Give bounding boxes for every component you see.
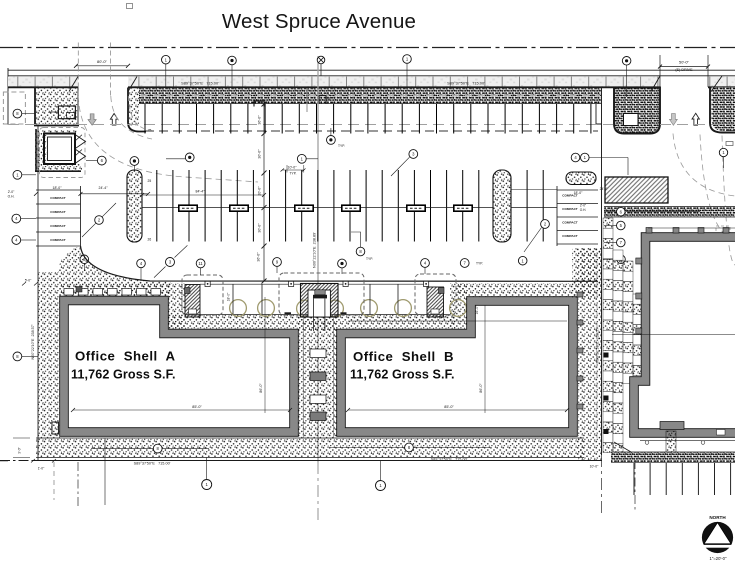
- svg-text:NORTH: NORTH: [709, 515, 726, 520]
- svg-text:25: 25: [148, 129, 152, 133]
- svg-text:TYP.: TYP.: [476, 262, 483, 266]
- svg-text:TYP.: TYP.: [338, 144, 345, 148]
- svg-text:COMPACT: COMPACT: [50, 210, 66, 214]
- svg-text:S89°37'50"E 715.00': S89°37'50"E 715.00': [447, 81, 485, 86]
- svg-text:10'-0": 10'-0": [288, 165, 298, 169]
- svg-text:85'-0": 85'-0": [444, 405, 454, 409]
- svg-text:3'-0": 3'-0": [18, 446, 22, 453]
- svg-text:24'-4": 24'-4": [99, 186, 109, 190]
- svg-text:Office Shell A: Office Shell A: [75, 349, 176, 364]
- svg-text:84'-4": 84'-4": [196, 190, 206, 194]
- svg-text:COMPACT: COMPACT: [50, 224, 66, 228]
- svg-text:2'-0": 2'-0": [8, 190, 15, 194]
- svg-text:West Spruce Avenue: West Spruce Avenue: [222, 10, 416, 33]
- svg-text:10'-0": 10'-0": [590, 465, 599, 469]
- svg-text:25: 25: [148, 179, 152, 183]
- svg-text:80'-0": 80'-0": [97, 59, 108, 64]
- svg-text:30'-0": 30'-0": [258, 223, 262, 233]
- svg-text:16'-0": 16'-0": [475, 305, 479, 314]
- svg-text:S89°37'50"E 715.00': S89°37'50"E 715.00': [134, 461, 171, 465]
- svg-text:COMPACT: COMPACT: [562, 234, 578, 238]
- svg-text:2'-0": 2'-0": [580, 204, 586, 208]
- svg-text:36'-0": 36'-0": [258, 115, 262, 125]
- svg-text:26: 26: [148, 238, 152, 242]
- svg-text:COMPACT: COMPACT: [50, 196, 66, 200]
- svg-text:1'-0": 1'-0": [38, 466, 45, 470]
- svg-text:S89°37'50"E 715.00': S89°37'50"E 715.00': [431, 457, 468, 461]
- svg-text:COMPACT: COMPACT: [562, 207, 578, 211]
- svg-text:O.H.: O.H.: [580, 208, 587, 212]
- svg-text:COMPACT: COMPACT: [562, 221, 578, 225]
- svg-text:50'-0": 50'-0": [679, 60, 690, 65]
- svg-text:18'-0": 18'-0": [574, 191, 583, 195]
- svg-text:72'-0": 72'-0": [437, 316, 447, 320]
- svg-text:86'-0": 86'-0": [259, 383, 263, 393]
- svg-text:11,762 Gross S.F.: 11,762 Gross S.F.: [350, 368, 455, 382]
- svg-text:85'-0": 85'-0": [192, 405, 202, 409]
- svg-text:COMPACT: COMPACT: [50, 238, 66, 242]
- svg-text:11: 11: [198, 261, 203, 266]
- svg-text:TYP.: TYP.: [290, 172, 297, 176]
- svg-text:N00°22'10"E 238.89': N00°22'10"E 238.89': [313, 232, 317, 268]
- svg-text:11,762 Gross S.F.: 11,762 Gross S.F.: [71, 368, 176, 382]
- svg-text:TYP.: TYP.: [366, 257, 373, 261]
- svg-text:18'-0": 18'-0": [227, 292, 231, 301]
- svg-text:N00°22'10"E 238.57': N00°22'10"E 238.57': [31, 324, 35, 359]
- svg-text:18'-0": 18'-0": [53, 186, 63, 190]
- svg-text:(E) DRIVE: (E) DRIVE: [675, 68, 693, 72]
- svg-text:Office Shell B: Office Shell B: [353, 349, 454, 364]
- svg-text:S89°37'50"E 715.00': S89°37'50"E 715.00': [181, 81, 219, 86]
- svg-text:O.H.: O.H.: [8, 195, 15, 199]
- svg-text:30'-0": 30'-0": [258, 149, 262, 159]
- svg-text:1"=20'-0": 1"=20'-0": [710, 556, 727, 561]
- svg-text:36'-0": 36'-0": [257, 252, 261, 262]
- svg-text:86'-0": 86'-0": [479, 383, 483, 393]
- svg-text:20'-0": 20'-0": [258, 186, 262, 196]
